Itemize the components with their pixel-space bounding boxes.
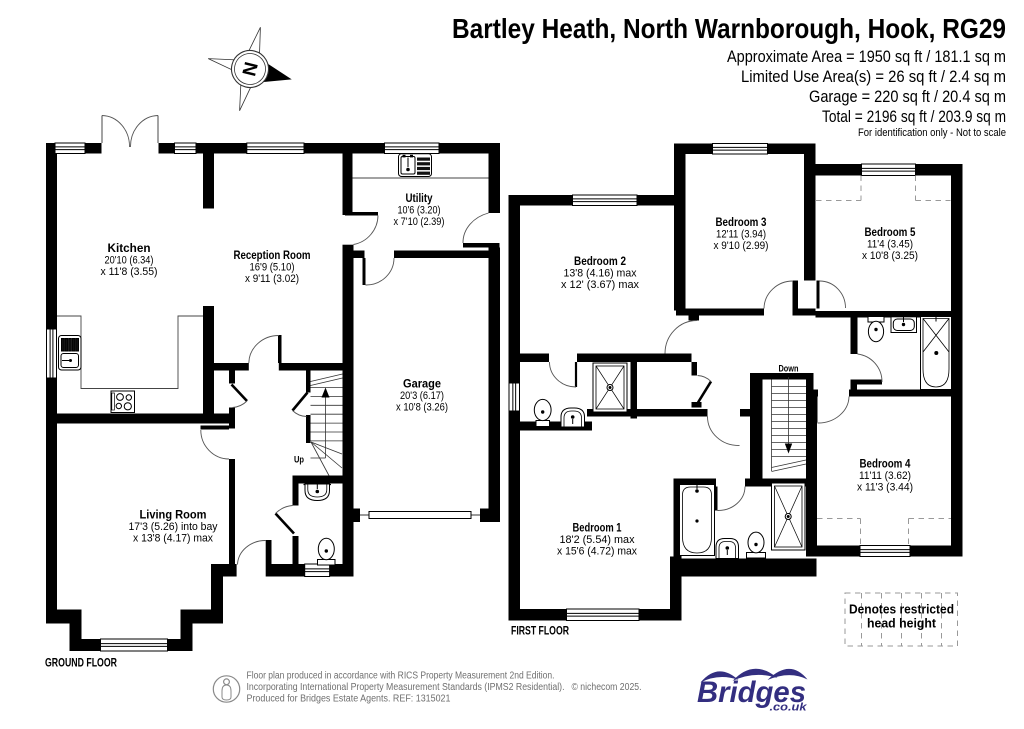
- svg-text:x 10'8 (3.26): x 10'8 (3.26): [396, 402, 448, 414]
- svg-text:Limited Use Area(s) = 26 sq ft: Limited Use Area(s) = 26 sq ft / 2.4 sq …: [741, 68, 1006, 86]
- svg-text:Garage: Garage: [403, 379, 441, 391]
- svg-text:Bedroom 4: Bedroom 4: [860, 459, 912, 471]
- svg-text:Incorporating International Pr: Incorporating International Property Mea…: [247, 682, 565, 693]
- svg-text:x 10'8 (3.25): x 10'8 (3.25): [862, 250, 918, 262]
- svg-text:GROUND FLOOR: GROUND FLOOR: [45, 658, 118, 670]
- svg-text:x 11'3 (3.44): x 11'3 (3.44): [857, 482, 913, 494]
- svg-text:© nichecom 2025.: © nichecom 2025.: [572, 682, 642, 693]
- svg-text:Garage = 220 sq ft / 20.4 sq m: Garage = 220 sq ft / 20.4 sq m: [809, 88, 1006, 106]
- svg-text:Down: Down: [779, 364, 799, 374]
- svg-text:.co.uk: .co.uk: [770, 702, 808, 714]
- svg-text:Bedroom 3: Bedroom 3: [716, 217, 767, 229]
- svg-text:x 9'10 (2.99): x 9'10 (2.99): [714, 240, 769, 252]
- svg-text:16'9 (5.10): 16'9 (5.10): [250, 262, 295, 274]
- svg-text:x 9'11 (3.02): x 9'11 (3.02): [245, 273, 299, 285]
- svg-text:Utility: Utility: [406, 193, 434, 205]
- svg-text:For identification only - Not: For identification only - Not to scale: [858, 127, 1006, 139]
- svg-text:Kitchen: Kitchen: [108, 243, 151, 255]
- svg-text:17'3 (5.26) into bay: 17'3 (5.26) into bay: [129, 521, 218, 533]
- svg-text:20'10 (6.34): 20'10 (6.34): [105, 255, 154, 267]
- svg-text:x 7'10 (2.39): x 7'10 (2.39): [394, 216, 445, 228]
- svg-text:Bedroom 5: Bedroom 5: [865, 227, 917, 239]
- svg-text:Up: Up: [294, 455, 304, 466]
- svg-text:Reception Room: Reception Room: [234, 250, 311, 262]
- svg-text:x 11'8 (3.55): x 11'8 (3.55): [101, 266, 158, 278]
- svg-text:13'8 (4.16) max: 13'8 (4.16) max: [564, 268, 637, 280]
- svg-text:x 15'6 (4.72) max: x 15'6 (4.72) max: [557, 546, 637, 558]
- svg-text:Bartley Heath, North Warnborou: Bartley Heath, North Warnborough, Hook, …: [452, 13, 1006, 44]
- svg-text:x 13'8 (4.17) max: x 13'8 (4.17) max: [133, 533, 213, 545]
- svg-text:11'11 (3.62): 11'11 (3.62): [859, 470, 911, 482]
- svg-text:head height: head height: [867, 617, 937, 631]
- svg-text:10'6 (3.20): 10'6 (3.20): [398, 205, 441, 217]
- svg-text:FIRST FLOOR: FIRST FLOOR: [511, 626, 570, 638]
- svg-text:Bedroom 1: Bedroom 1: [573, 523, 622, 535]
- svg-text:12'11 (3.94): 12'11 (3.94): [716, 229, 766, 241]
- svg-text:Produced for Bridges Estate Ag: Produced for Bridges Estate Agents. REF:…: [247, 694, 451, 705]
- svg-text:Denotes restricted: Denotes restricted: [849, 603, 954, 617]
- svg-text:Approximate Area = 1950 sq ft: Approximate Area = 1950 sq ft / 181.1 sq…: [727, 48, 1006, 66]
- svg-text:20'3 (6.17): 20'3 (6.17): [400, 390, 444, 402]
- svg-text:Total = 2196 sq ft / 203.9 sq: Total = 2196 sq ft / 203.9 sq m: [822, 108, 1006, 126]
- svg-text:18'2 (5.54) max: 18'2 (5.54) max: [560, 534, 635, 546]
- svg-text:11'4 (3.45): 11'4 (3.45): [867, 239, 913, 251]
- svg-text:Living Room: Living Room: [140, 510, 207, 522]
- svg-text:Bedroom 2: Bedroom 2: [574, 256, 626, 268]
- svg-text:x 12' (3.67) max: x 12' (3.67) max: [561, 279, 639, 291]
- svg-text:Floor plan produced in accorda: Floor plan produced in accordance with R…: [247, 671, 555, 682]
